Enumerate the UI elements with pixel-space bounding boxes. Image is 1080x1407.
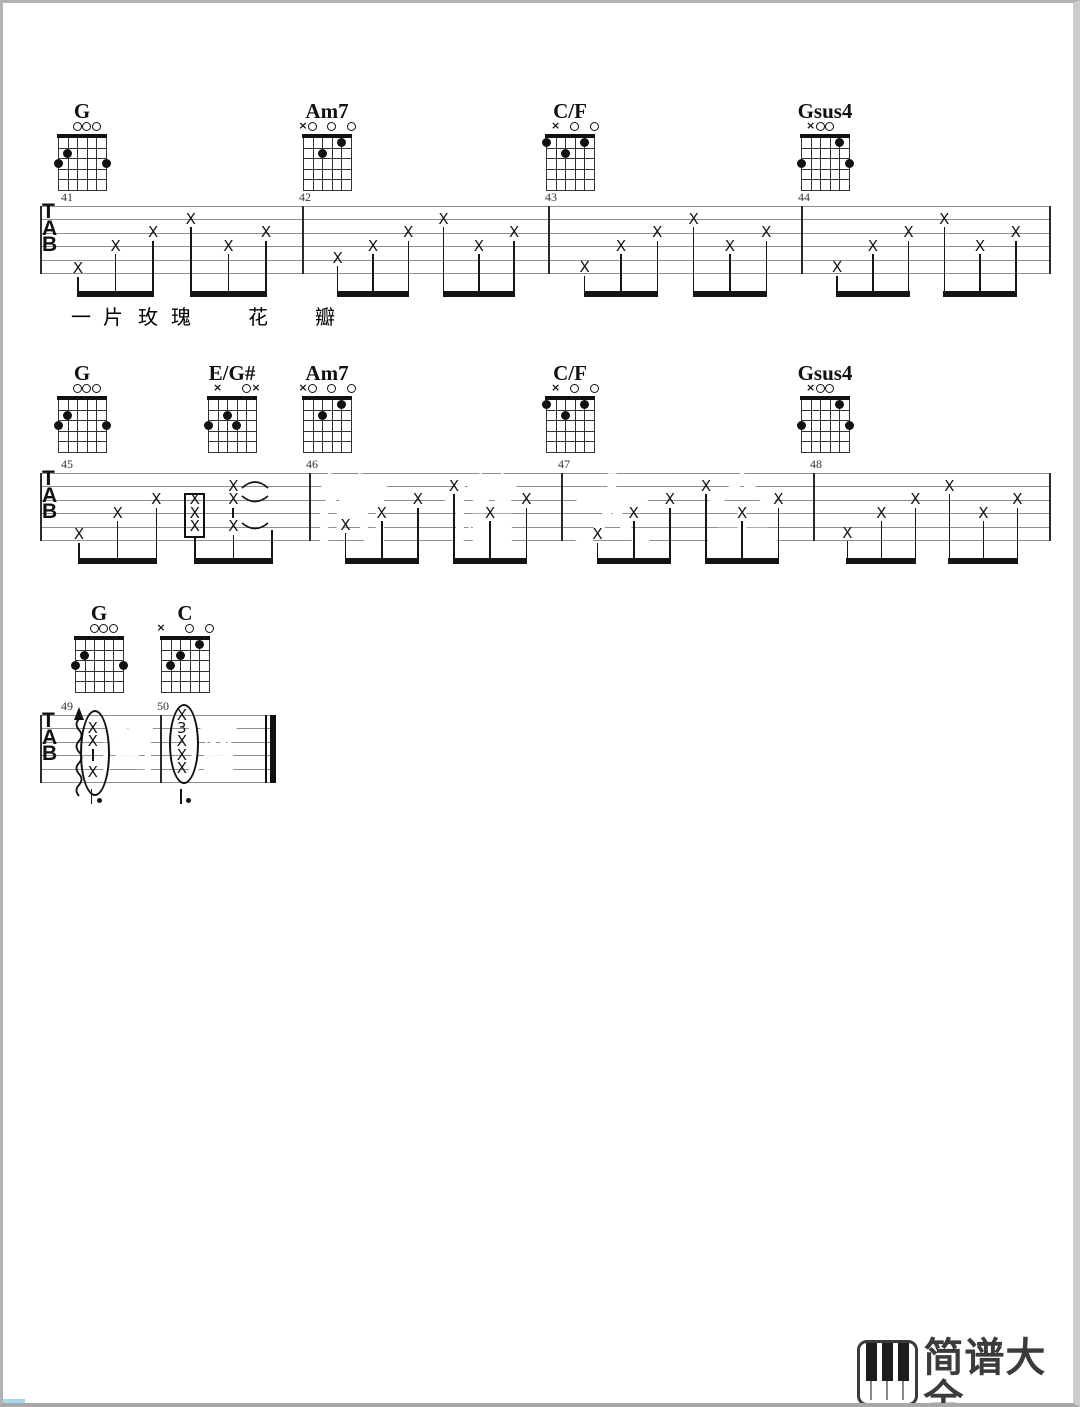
beam <box>846 558 916 565</box>
strum-x-mark: X <box>148 491 164 507</box>
measure-number: 46 <box>306 457 318 472</box>
barline <box>40 473 42 541</box>
chord-fret-line <box>801 431 850 432</box>
chord-nut <box>545 396 595 400</box>
chord-label: G <box>59 601 139 626</box>
strum-x-mark: X <box>1008 224 1024 240</box>
open-string-marker <box>205 624 214 633</box>
chord-nut <box>302 396 352 400</box>
chord-fret-line <box>546 148 595 149</box>
chord-finger-dot <box>80 651 89 660</box>
strum-x-mark: X <box>183 211 199 227</box>
lyric-char: 玫 <box>136 301 160 330</box>
chord-finger-dot <box>195 640 204 649</box>
chord-fret-line <box>303 431 352 432</box>
strum-x-mark: X <box>108 238 124 254</box>
strum-x-mark: X <box>471 238 487 254</box>
chord-string-line <box>575 138 576 190</box>
chord-fret-line <box>208 431 257 432</box>
beam <box>345 558 419 565</box>
beam <box>597 558 671 565</box>
chord-fret-line <box>58 452 107 453</box>
muted-string-marker: × <box>806 381 816 394</box>
open-string-marker <box>73 384 82 393</box>
open-string-marker <box>590 122 599 131</box>
chord-string-line <box>94 640 95 692</box>
strum-x-mark: X <box>71 526 87 542</box>
note-stem <box>1017 508 1019 563</box>
chord-finger-dot <box>176 651 185 660</box>
chord-string-line <box>113 640 114 692</box>
chord-string-line <box>303 138 304 190</box>
chord-finger-dot <box>835 138 844 147</box>
chord-fret-line <box>75 692 124 693</box>
strum-x-mark: X <box>649 224 665 240</box>
chord-string-line <box>87 138 88 190</box>
chord-label: G <box>42 99 122 124</box>
chord-string-line <box>77 400 78 452</box>
chord-fret-line <box>58 169 107 170</box>
chord-fret-line <box>546 169 595 170</box>
strum-x-mark: X <box>865 238 881 254</box>
final-barline-thick <box>270 715 277 783</box>
strum-x-mark: X <box>907 491 923 507</box>
open-string-marker <box>185 624 194 633</box>
chord-string-line <box>180 640 181 692</box>
barline <box>309 473 311 541</box>
tab-clef-letter: B <box>42 745 57 763</box>
chord-string-line <box>68 138 69 190</box>
chord-finger-dot <box>232 421 241 430</box>
strum-x-mark: X <box>338 517 354 533</box>
chord-fret-line <box>58 179 107 180</box>
chord-finger-dot <box>102 421 111 430</box>
chord-string-line <box>351 400 352 452</box>
augmentation-dot <box>97 798 102 803</box>
open-string-marker <box>242 384 251 393</box>
chord-fret-line <box>208 410 257 411</box>
beam <box>337 291 410 298</box>
strum-x-mark: X <box>506 224 522 240</box>
chord-string-line <box>104 640 105 692</box>
chord-string-line <box>594 400 595 452</box>
chord-string-line <box>85 640 86 692</box>
chord-finger-dot <box>561 149 570 158</box>
strum-x-mark: X <box>972 238 988 254</box>
open-string-marker <box>347 384 356 393</box>
muted-string-marker: × <box>298 119 308 132</box>
strum-x-mark: X <box>1009 491 1025 507</box>
strum-x-mark: X <box>70 260 86 276</box>
muted-string-marker: × <box>551 119 561 132</box>
staff-line <box>40 206 1050 207</box>
note-stem <box>766 241 768 296</box>
strum-x-mark: X <box>145 224 161 240</box>
chord-fret-line <box>58 158 107 159</box>
chord-fret-line <box>801 169 850 170</box>
tab-clef-letter: B <box>42 236 57 254</box>
barline <box>813 473 815 541</box>
lyric-char: 花 <box>246 301 270 330</box>
measure-number: 48 <box>810 457 822 472</box>
open-string-marker <box>590 384 599 393</box>
chord-fret-line <box>546 431 595 432</box>
chord-string-line <box>811 400 812 452</box>
chord-nut <box>160 636 210 640</box>
piano-key-divider <box>902 1381 904 1400</box>
beam <box>453 558 527 565</box>
strum-x-mark: X <box>110 505 126 521</box>
chord-fret-line <box>546 452 595 453</box>
barline <box>40 206 42 274</box>
chord-finger-dot <box>542 400 551 409</box>
logo-title: 简谱大全 <box>923 1337 1080 1407</box>
note-stem <box>156 508 158 563</box>
strum-x-mark: X <box>590 526 606 542</box>
note-stem <box>453 494 455 563</box>
measure-number: 45 <box>61 457 73 472</box>
chord-finger-dot <box>166 661 175 670</box>
muted-string-marker: × <box>806 119 816 132</box>
barline <box>548 206 550 274</box>
strum-x-mark: X <box>187 518 203 534</box>
scan-artifact <box>3 1399 25 1403</box>
chord-finger-dot <box>797 159 806 168</box>
strum-x-mark: X <box>613 238 629 254</box>
note-stem <box>949 494 951 563</box>
strum-x-mark: X <box>410 491 426 507</box>
muted-string-marker: × <box>551 381 561 394</box>
strum-x-mark: X <box>698 478 714 494</box>
note-stem <box>705 494 707 563</box>
open-string-marker <box>308 384 317 393</box>
open-string-marker <box>347 122 356 131</box>
chord-string-line <box>68 400 69 452</box>
muted-string-marker: × <box>213 381 223 394</box>
open-string-marker <box>816 384 825 393</box>
chord-fret-line <box>801 148 850 149</box>
open-string-marker <box>327 384 336 393</box>
chord-string-line <box>96 400 97 452</box>
tie-arc <box>241 492 269 508</box>
chord-fret-line <box>801 179 850 180</box>
note-stem <box>657 241 659 296</box>
open-string-marker <box>570 384 579 393</box>
chord-string-line <box>227 400 228 452</box>
muted-string-marker: × <box>251 381 261 394</box>
chord-string-line <box>820 138 821 190</box>
strum-x-mark: X <box>577 259 593 275</box>
chord-finger-dot <box>223 411 232 420</box>
beam <box>443 291 516 298</box>
watermark: 简谱大全 <box>313 451 833 563</box>
chord-nut <box>74 636 124 640</box>
chord-string-line <box>161 640 162 692</box>
piano-black-key <box>866 1343 877 1381</box>
chord-string-line <box>246 400 247 452</box>
tie-arc <box>241 519 269 535</box>
chord-string-line <box>565 138 566 190</box>
lyric-char: 瓣 <box>313 301 337 330</box>
strum-x-mark: X <box>936 211 952 227</box>
beam <box>948 558 1018 565</box>
measure-number: 42 <box>299 190 311 205</box>
tab-clef-letter: B <box>42 503 57 521</box>
chord-fret-line <box>303 452 352 453</box>
open-string-marker <box>825 122 834 131</box>
chord-finger-dot <box>318 149 327 158</box>
chord-string-line <box>303 400 304 452</box>
chord-fret-line <box>546 158 595 159</box>
chord-string-line <box>209 640 210 692</box>
barline <box>1049 473 1051 541</box>
note-stem <box>152 241 154 296</box>
beam <box>836 291 909 298</box>
open-string-marker <box>308 122 317 131</box>
chord-label: G <box>42 361 122 386</box>
barline <box>561 473 563 541</box>
open-string-marker <box>73 122 82 131</box>
chord-string-line <box>313 138 314 190</box>
note-stem <box>190 227 192 296</box>
chord-string-line <box>565 400 566 452</box>
strum-x-mark: X <box>829 259 845 275</box>
chord-string-line <box>811 138 812 190</box>
chord-fret-line <box>801 452 850 453</box>
chord-fret-line <box>801 420 850 421</box>
strum-x-mark: X <box>436 211 452 227</box>
beam <box>194 558 273 565</box>
barline <box>801 206 803 274</box>
strum-x-mark: X <box>722 238 738 254</box>
chord-fret-line <box>58 431 107 432</box>
barline <box>160 715 162 783</box>
chord-finger-dot <box>71 661 80 670</box>
note-stem <box>778 508 780 563</box>
chord-nut <box>545 134 595 138</box>
chord-finger-dot <box>102 159 111 168</box>
half-note-stem <box>180 789 182 804</box>
strum-x-mark: X <box>85 733 101 749</box>
note-stem <box>1015 241 1017 296</box>
chord-nut <box>207 396 257 400</box>
chord-fret-line <box>303 179 352 180</box>
chord-fret-line <box>208 441 257 442</box>
measure-number: 47 <box>558 457 570 472</box>
chord-fret-line <box>58 420 107 421</box>
lyric-char: 瑰 <box>169 301 193 330</box>
beam <box>693 291 768 298</box>
strum-x-mark: X <box>174 760 190 776</box>
strum-x-mark: X <box>225 518 241 534</box>
chord-finger-dot <box>835 400 844 409</box>
note-stem <box>408 241 410 296</box>
chord-string-line <box>820 400 821 452</box>
chord-fret-line <box>303 420 352 421</box>
piano-keys-icon <box>857 1340 918 1406</box>
chord-nut <box>800 134 850 138</box>
strum-x-mark: X <box>225 491 241 507</box>
chord-label: Gsus4 <box>785 361 865 386</box>
chord-nut <box>57 396 107 400</box>
muted-string-marker: × <box>298 381 308 394</box>
chord-fret-line <box>161 671 210 672</box>
augmentation-dot <box>186 798 191 803</box>
chord-finger-dot <box>119 661 128 670</box>
strum-x-mark: X <box>839 525 855 541</box>
chord-fret-line <box>58 441 107 442</box>
chord-string-line <box>322 400 323 452</box>
note-stem <box>669 508 671 563</box>
chord-string-line <box>575 400 576 452</box>
chord-finger-dot <box>54 421 63 430</box>
chord-finger-dot <box>63 149 72 158</box>
piano-black-key <box>898 1343 909 1381</box>
note-stem <box>417 508 419 563</box>
chord-nut <box>57 134 107 138</box>
strum-x-mark: X <box>220 238 236 254</box>
chord-label: C/F <box>530 99 610 124</box>
chord-finger-dot <box>797 421 806 430</box>
chord-fret-line <box>161 650 210 651</box>
note-stem <box>443 227 445 296</box>
site-logo: 简谱大全 jianpudq.com <box>857 1337 1080 1407</box>
note-stem <box>693 227 695 296</box>
stem-tick <box>92 749 94 761</box>
chord-string-line <box>96 138 97 190</box>
chord-string-line <box>332 400 333 452</box>
note-stem <box>526 508 528 563</box>
strum-x-mark: X <box>374 505 390 521</box>
chord-nut <box>302 134 352 138</box>
note-stem <box>265 241 267 296</box>
strum-x-mark: X <box>626 505 642 521</box>
strum-x-mark: X <box>400 224 416 240</box>
beam <box>943 291 1016 298</box>
note-stem <box>944 227 946 296</box>
measure-number: 50 <box>157 699 169 714</box>
lyric-char: 片 <box>101 301 125 330</box>
open-string-marker <box>82 384 91 393</box>
chord-finger-dot <box>204 421 213 430</box>
chord-string-line <box>830 400 831 452</box>
strum-x-mark: X <box>446 478 462 494</box>
chord-finger-dot <box>542 138 551 147</box>
chord-fret-line <box>161 681 210 682</box>
chord-string-line <box>594 138 595 190</box>
chord-string-line <box>256 400 257 452</box>
half-note-stem <box>91 789 93 804</box>
barline <box>302 206 304 274</box>
chord-string-line <box>556 138 557 190</box>
barline <box>1049 206 1051 274</box>
strum-x-mark: X <box>734 505 750 521</box>
beam <box>77 291 154 298</box>
piano-black-key <box>882 1343 893 1381</box>
piano-key-divider <box>870 1381 872 1400</box>
chord-fret-line <box>801 441 850 442</box>
chord-string-line <box>313 400 314 452</box>
beam <box>78 558 157 565</box>
beam <box>705 558 779 565</box>
chord-finger-dot <box>845 159 854 168</box>
note-stem <box>908 241 910 296</box>
chord-string-line <box>322 138 323 190</box>
chord-fret-line <box>75 681 124 682</box>
beam <box>190 291 267 298</box>
open-string-marker <box>92 384 101 393</box>
chord-string-line <box>218 400 219 452</box>
chord-fret-line <box>546 420 595 421</box>
measure-number: 43 <box>545 190 557 205</box>
strum-x-mark: X <box>662 491 678 507</box>
chord-finger-dot <box>845 421 854 430</box>
barline <box>40 715 42 783</box>
chord-fret-line <box>801 158 850 159</box>
chord-fret-line <box>801 410 850 411</box>
chord-finger-dot <box>580 400 589 409</box>
open-string-marker <box>90 624 99 633</box>
strum-x-mark: X <box>873 505 889 521</box>
chord-fret-line <box>208 452 257 453</box>
chord-label: C/F <box>530 361 610 386</box>
chord-fret-line <box>546 441 595 442</box>
chord-fret-line <box>546 410 595 411</box>
chord-string-line <box>190 640 191 692</box>
strum-x-mark: X <box>330 250 346 266</box>
chord-fret-line <box>303 410 352 411</box>
chord-nut <box>800 396 850 400</box>
chord-string-line <box>830 138 831 190</box>
chord-string-line <box>556 400 557 452</box>
chord-fret-line <box>303 441 352 442</box>
open-string-marker <box>99 624 108 633</box>
note-stem <box>513 241 515 296</box>
open-string-marker <box>825 384 834 393</box>
chord-finger-dot <box>337 138 346 147</box>
open-string-marker <box>570 122 579 131</box>
measure-number: 44 <box>798 190 810 205</box>
chord-string-line <box>87 400 88 452</box>
chord-label: Gsus4 <box>785 99 865 124</box>
open-string-marker <box>816 122 825 131</box>
muted-string-marker: × <box>156 621 166 634</box>
strum-arrow <box>72 707 86 799</box>
chord-fret-line <box>303 169 352 170</box>
strum-x-mark: X <box>518 491 534 507</box>
chord-fret-line <box>303 158 352 159</box>
logo-text: 简谱大全 jianpudq.com <box>923 1337 1080 1407</box>
strum-x-mark: X <box>941 478 957 494</box>
strum-x-mark: X <box>365 238 381 254</box>
piano-key-divider <box>886 1381 888 1400</box>
chord-fret-line <box>75 671 124 672</box>
strum-x-mark: X <box>85 764 101 780</box>
strum-x-mark: X <box>686 211 702 227</box>
chord-finger-dot <box>337 400 346 409</box>
final-barline-thin <box>265 715 267 783</box>
chord-finger-dot <box>54 159 63 168</box>
measure-number: 41 <box>61 190 73 205</box>
chord-string-line <box>351 138 352 190</box>
open-string-marker <box>92 122 101 131</box>
chord-finger-dot <box>561 411 570 420</box>
chord-finger-dot <box>318 411 327 420</box>
sheet-page: TABGAm7×C/F×Gsus4×41XXXXXX42XXXXXX43XXXX… <box>0 0 1080 1407</box>
chord-string-line <box>332 138 333 190</box>
chord-finger-dot <box>63 411 72 420</box>
open-string-marker <box>327 122 336 131</box>
